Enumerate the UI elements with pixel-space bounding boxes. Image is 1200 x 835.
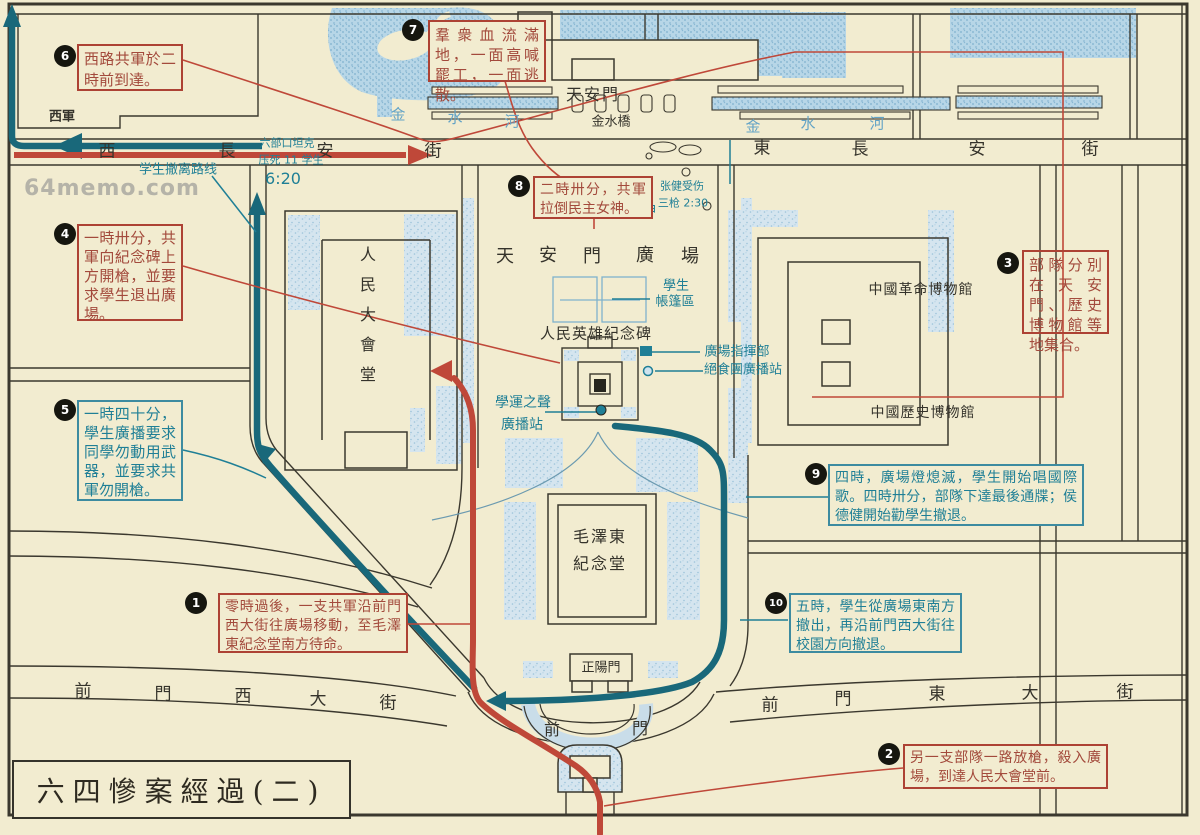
label-qianmen: 門 bbox=[632, 721, 648, 737]
map-title: 六四慘案經過(二) bbox=[12, 760, 351, 819]
callout-box-10: 五時，學生從廣場東南方撤出，再沿前門西大街往校園方向撤退。 bbox=[789, 593, 962, 653]
label-great-hall: 會 bbox=[360, 337, 376, 353]
street-qianmen-east: 前 bbox=[762, 698, 779, 715]
street-qianmen-west: 大 bbox=[310, 692, 327, 709]
voice-station-marker bbox=[596, 405, 606, 415]
callout-box-4: 一時卅分，共軍向紀念碑上方開槍，並要求學生退出廣場。 bbox=[77, 224, 183, 321]
street-qianmen-east: 門 bbox=[835, 692, 852, 709]
label-great-hall: 堂 bbox=[360, 367, 376, 383]
street-qianmen-east: 東 bbox=[929, 687, 946, 704]
hunger-strike-broadcast-marker bbox=[644, 367, 653, 376]
watermark: 64memo.com bbox=[24, 176, 200, 201]
label-tiananmen-square: 廣 bbox=[636, 247, 654, 265]
callout-badge-7: 7 bbox=[402, 19, 424, 41]
label-great-hall: 大 bbox=[360, 307, 376, 323]
street-xichangan: 西 bbox=[99, 144, 116, 161]
street-qianmen-west: 街 bbox=[380, 696, 397, 713]
label-tiananmen-gate: 天安門 bbox=[566, 87, 620, 103]
label-monument: 人民英雄紀念碑 bbox=[540, 327, 652, 342]
label-revolution-museum: 中國革命博物館 bbox=[869, 283, 974, 297]
label-time-620: 6:20 bbox=[265, 171, 301, 187]
label-mao-mausoleum: 毛澤東 bbox=[573, 529, 627, 545]
label-crushed-students: 压死 11 学生 bbox=[259, 155, 324, 166]
label-golden-water-river: 金 bbox=[390, 108, 405, 123]
callout-badge-3: 3 bbox=[997, 252, 1019, 274]
street-qianmen-east: 街 bbox=[1117, 685, 1134, 702]
callout-badge-5: 5 bbox=[54, 399, 76, 421]
street-xichangan: 長 bbox=[219, 144, 236, 161]
label-west-army: 西軍 bbox=[49, 111, 75, 124]
label-zhengyangmen: 正陽門 bbox=[581, 662, 620, 675]
label-zhangjian-wounded: 张健受伤 bbox=[660, 181, 704, 192]
street-qianmen-west: 前 bbox=[75, 684, 92, 701]
label-history-museum: 中國歷史博物館 bbox=[871, 406, 976, 420]
street-qianmen-west: 西 bbox=[235, 689, 252, 706]
street-dongchangan: 東 bbox=[754, 141, 771, 158]
callout-box-3: 部隊分別在天安門、歷史博物館等地集合。 bbox=[1022, 250, 1109, 334]
callout-badge-9: 9 bbox=[805, 463, 827, 485]
label-tent-area: 學生 bbox=[663, 280, 689, 293]
street-dongchangan: 安 bbox=[969, 142, 986, 159]
label-golden-water-river: 金 bbox=[745, 120, 760, 135]
callout-box-6: 西路共軍於二時前到達。 bbox=[77, 44, 183, 91]
label-three-shots: 三枪 2:30 bbox=[658, 198, 708, 209]
label-voice-of-student-movement: 廣播站 bbox=[501, 418, 543, 432]
street-qianmen-east: 大 bbox=[1022, 686, 1039, 703]
callout-badge-6: 6 bbox=[54, 45, 76, 67]
label-tiananmen-square: 安 bbox=[539, 247, 557, 265]
label-tiananmen-square: 場 bbox=[681, 248, 699, 266]
callout-box-5: 一時四十分，學生廣播要求同學勿動用武器，並要求共軍勿開槍。 bbox=[77, 400, 183, 501]
label-golden-water-bridge: 金水橋 bbox=[591, 116, 630, 129]
callout-badge-8: 8 bbox=[508, 175, 530, 197]
label-tiananmen-square: 門 bbox=[583, 248, 601, 266]
street-dongchangan: 街 bbox=[1082, 142, 1099, 159]
label-great-hall: 民 bbox=[360, 277, 376, 293]
callout-box-2: 另一支部隊一路放槍，殺入廣場，到達人民大會堂前。 bbox=[903, 744, 1108, 789]
label-golden-water-river: 水 bbox=[800, 117, 815, 132]
callout-badge-2: 2 bbox=[878, 743, 900, 765]
map-canvas: 64memo.com 六四慘案經過(二) 西長安街東長安街前門西大街前門東大街西… bbox=[0, 0, 1200, 835]
label-square-command: 廣場指揮部 bbox=[704, 346, 769, 359]
label-great-hall: 人 bbox=[360, 247, 376, 263]
label-voice-of-student-movement: 學運之聲 bbox=[495, 396, 551, 410]
label-tiananmen-square: 天 bbox=[496, 248, 514, 266]
label-mao-mausoleum: 紀念堂 bbox=[573, 556, 627, 572]
label-golden-water-river: 水 bbox=[447, 111, 462, 126]
callout-badge-1: 1 bbox=[185, 592, 207, 614]
label-hunger-strike-broadcast: 絕食團廣播站 bbox=[704, 364, 782, 377]
callout-badge-10: 10 bbox=[765, 592, 787, 614]
golden-water-river bbox=[428, 86, 1102, 119]
label-tent-area: 帳篷區 bbox=[655, 296, 694, 309]
callout-box-7: 羣衆血流滿地，一面高喊罷工，一面逃散。 bbox=[428, 20, 546, 82]
label-liubukou-tank: 六部口坦克 bbox=[260, 138, 315, 149]
street-qianmen-west: 門 bbox=[155, 687, 172, 704]
street-dongchangan: 長 bbox=[852, 142, 869, 159]
callout-box-1: 零時過後，一支共軍沿前門西大街往廣場移動，至毛澤東紀念堂南方待命。 bbox=[218, 593, 408, 653]
command-post-marker bbox=[640, 346, 652, 356]
label-qianmen: 前 bbox=[544, 722, 560, 738]
street-xichangan: 街 bbox=[425, 144, 442, 161]
callout-box-9: 四時，廣場燈熄滅，學生開始唱國際歌。四時卅分，部隊下達最後通牒；侯德健開始勸學生… bbox=[828, 464, 1084, 526]
callout-badge-4: 4 bbox=[54, 223, 76, 245]
label-golden-water-river: 河 bbox=[504, 115, 519, 130]
tiananmen-gate-building bbox=[552, 40, 758, 80]
label-golden-water-river: 河 bbox=[869, 117, 884, 132]
label-student-retreat-route: 学生撤离路线 bbox=[139, 164, 217, 177]
callout-box-8: 二時卅分，共軍拉倒民主女神。 bbox=[533, 176, 653, 219]
